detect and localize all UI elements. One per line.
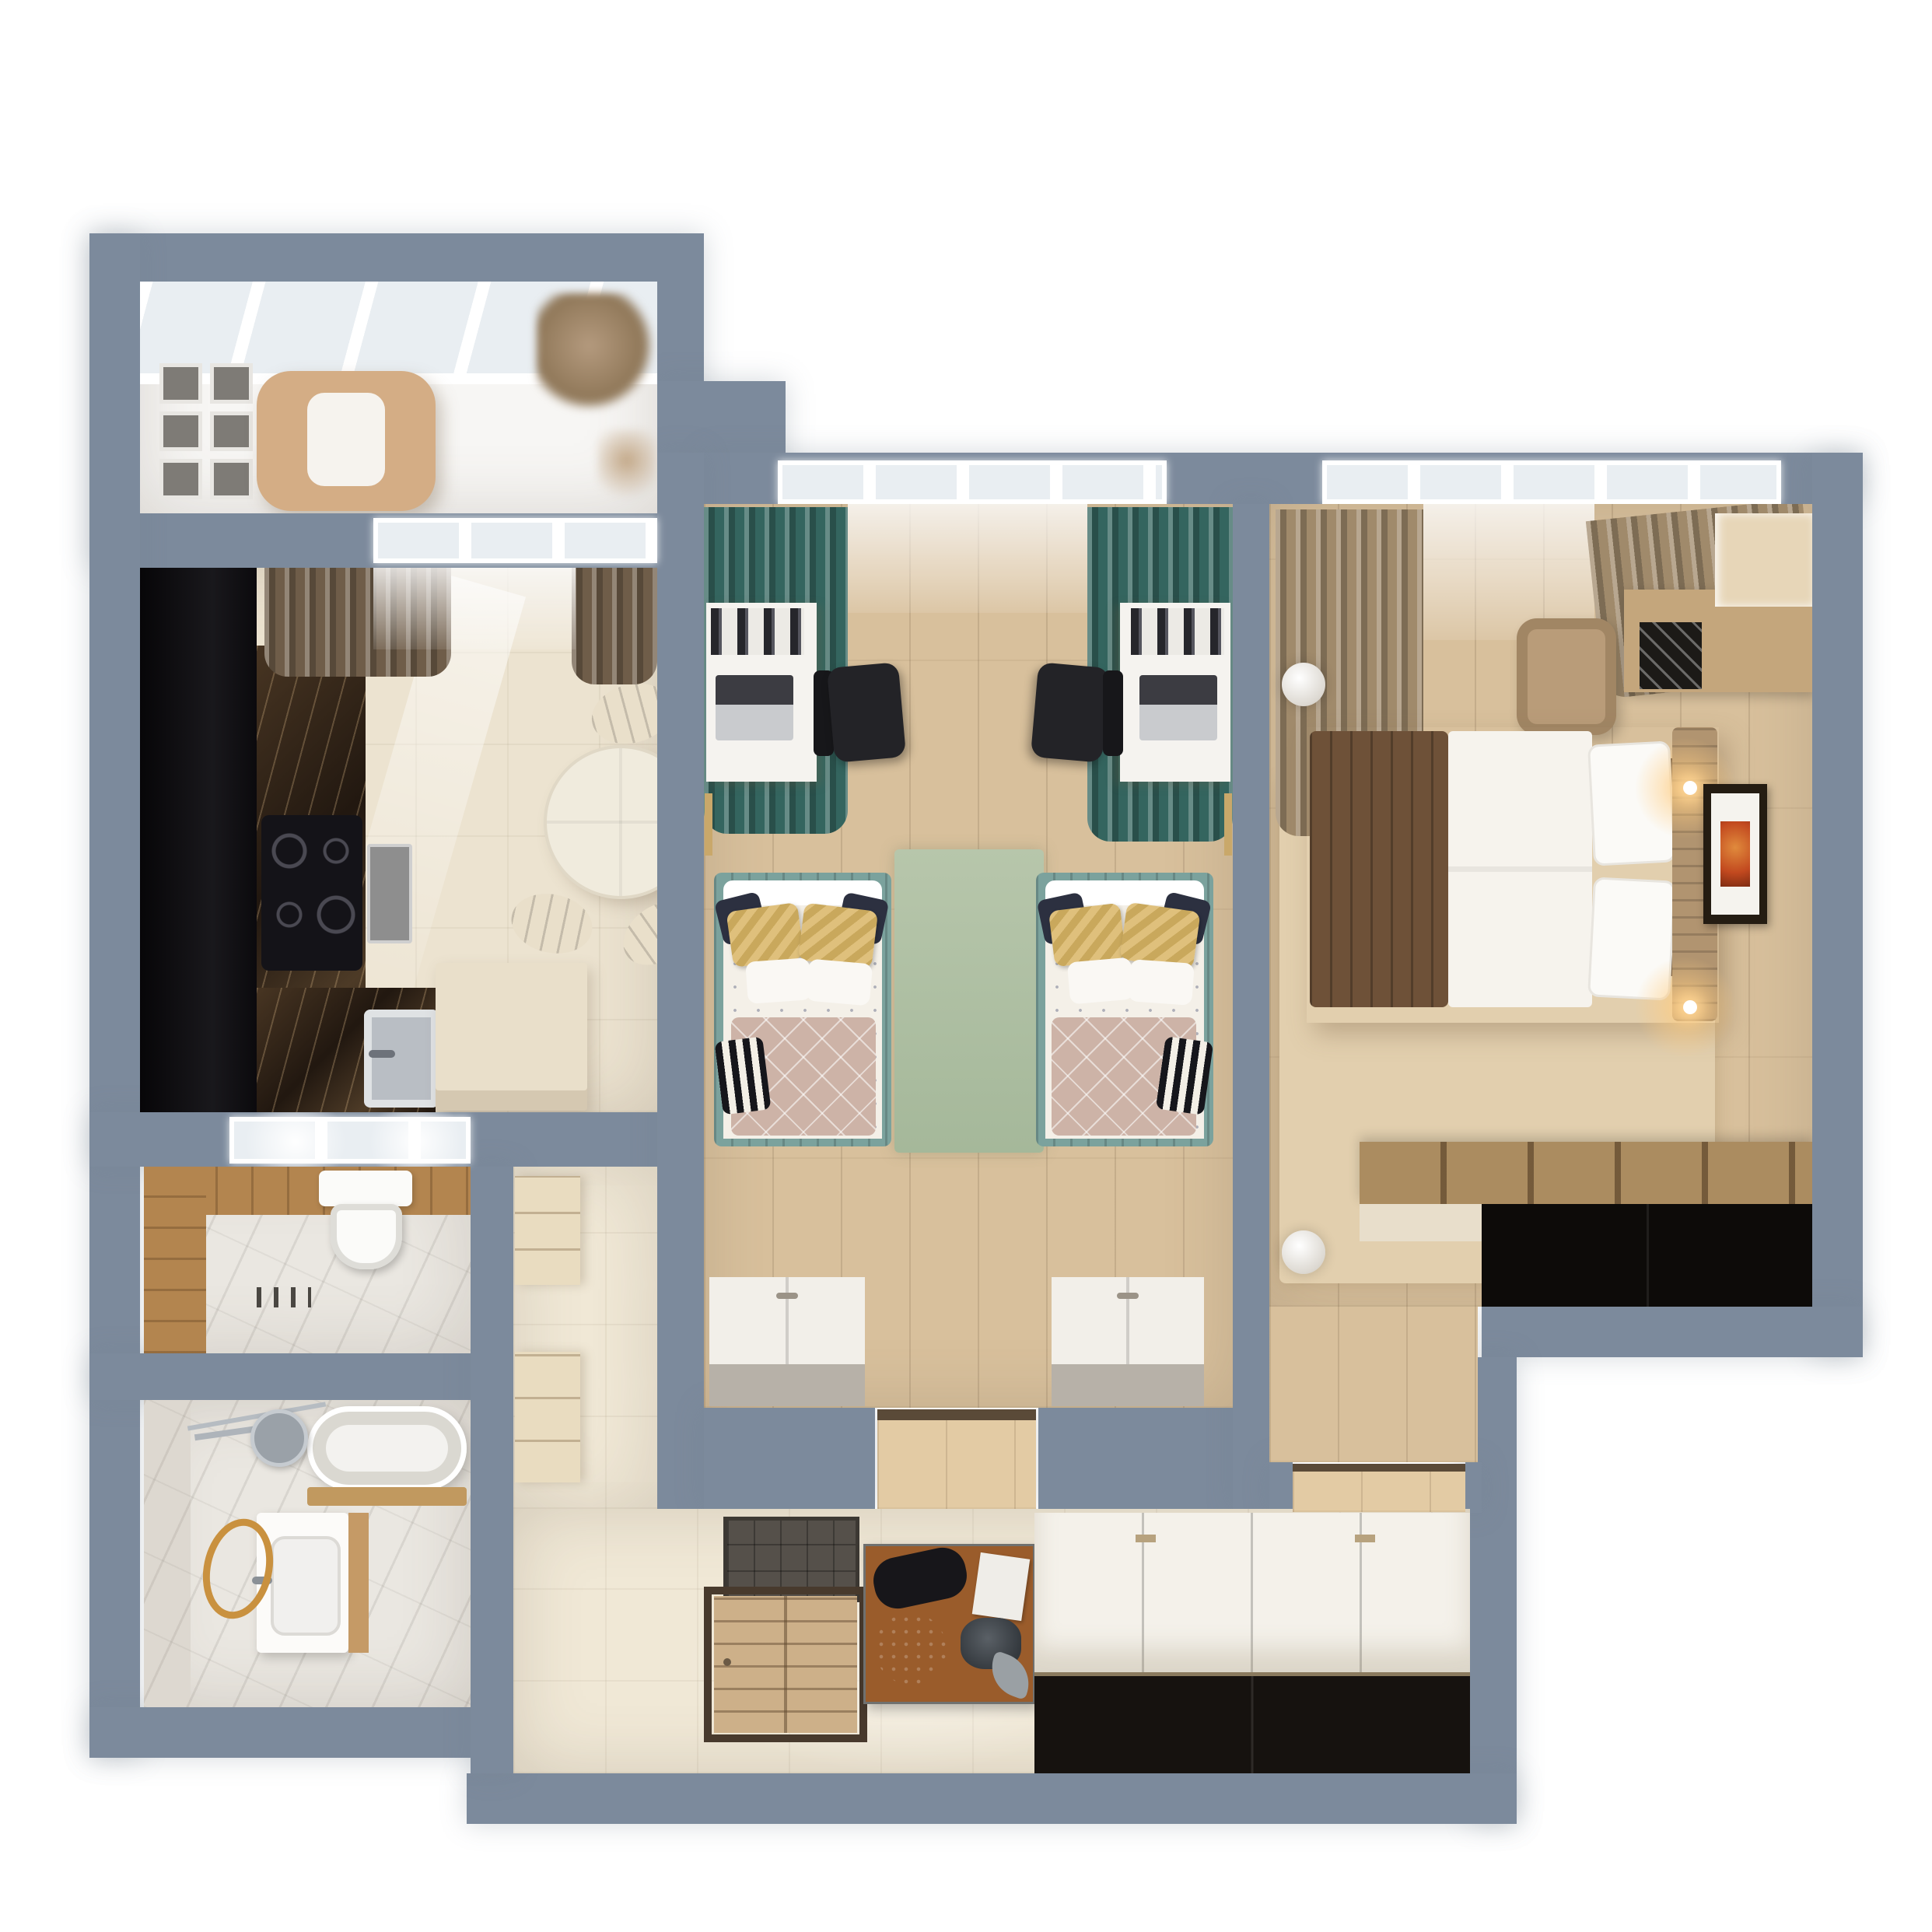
pillow-white: [806, 959, 873, 1006]
wall-left-outer: [89, 233, 140, 1758]
kitchen-window-glass: [378, 523, 653, 558]
dining-table: [547, 748, 657, 896]
sliding-wardrobe-front: [1034, 1672, 1470, 1773]
desk-shelf-right: [1131, 608, 1224, 655]
cabinet-handle: [1117, 1293, 1139, 1299]
room-master-bedroom: [1269, 504, 1812, 1307]
wall-wc-bath: [89, 1353, 513, 1400]
pillow-zigzag: [715, 1037, 772, 1115]
corkboard-right: [1224, 793, 1232, 856]
bathtub: [307, 1406, 467, 1490]
pillow-white: [1067, 957, 1134, 1005]
office-chair-right: [1031, 662, 1110, 763]
room-kitchen: [140, 568, 657, 1112]
kitchen-curtain-right: [572, 568, 657, 684]
wall-kids-master: [1233, 504, 1269, 1509]
pillow-zigzag: [1156, 1036, 1213, 1115]
pillow-yellow: [726, 902, 804, 968]
wall-sconce: [1683, 1000, 1697, 1014]
wall-master-door-right: [1465, 1462, 1482, 1513]
pendant-lamp: [1282, 663, 1325, 706]
pillow-yellow: [798, 902, 878, 968]
floor-drain: [257, 1287, 311, 1307]
wall-bath-bottom: [89, 1707, 513, 1758]
room-wc: [144, 1167, 471, 1353]
woven-basket: [875, 1613, 947, 1685]
room-corridor: [513, 1167, 657, 1509]
room-balcony: [140, 282, 657, 513]
corridor-cabinet: [515, 1176, 580, 1285]
pendant-lamp: [1282, 1230, 1325, 1274]
kids-cabinet-left: [709, 1277, 865, 1406]
papers: [972, 1552, 1031, 1621]
wall-sconce: [1683, 781, 1697, 795]
toilet-bowl: [331, 1204, 402, 1269]
corkboard-left: [705, 793, 712, 856]
wc-window: [229, 1117, 471, 1164]
bed-duvet: [1448, 731, 1592, 1007]
wardrobe-handle: [1355, 1535, 1375, 1542]
kitchen-sheer-curtain: [373, 568, 576, 649]
kitchen-island: [436, 963, 587, 1111]
shower-head: [250, 1409, 308, 1467]
kids-sheer-curtain: [848, 504, 1087, 613]
laptop-left: [716, 675, 793, 740]
pillow-yellow: [1119, 902, 1200, 970]
bathroom-wall-left: [144, 1400, 191, 1707]
picture-frame: [159, 411, 202, 452]
sliding-wardrobe-top: [1034, 1513, 1470, 1672]
framed-picture: [1703, 784, 1767, 924]
bathtub-wood-panel: [307, 1487, 467, 1506]
kids-rug: [894, 849, 1044, 1153]
faucet: [369, 1050, 395, 1058]
kids-window: [778, 460, 1167, 504]
kitchen-sink: [364, 1010, 439, 1108]
oven: [367, 844, 412, 943]
kids-door-opening: [877, 1409, 1036, 1509]
dining-chair: [506, 887, 597, 961]
kids-cabinet-right: [1052, 1277, 1204, 1406]
bed-throw-brown: [1310, 731, 1448, 1007]
dining-chair: [611, 889, 657, 978]
wall-kids-left: [657, 453, 704, 1509]
dresser-top: [1360, 1142, 1812, 1204]
office-chair-left: [827, 662, 906, 763]
wall-kids-bottom-right: [1038, 1408, 1233, 1509]
wardrobe-handle: [1136, 1535, 1156, 1542]
balcony-gallery-wall: [159, 363, 253, 499]
shoe-console: [863, 1544, 1035, 1704]
induction-cooktop: [261, 815, 362, 971]
master-armchair: [1517, 618, 1616, 735]
room-bathroom: [144, 1400, 471, 1707]
office-chair-right-back: [1103, 670, 1123, 756]
vanity-cabinet: [257, 1513, 348, 1653]
chair-cushion: [307, 393, 385, 486]
vanity-basin: [271, 1536, 341, 1636]
wall-master-door-left: [1269, 1462, 1293, 1513]
desk-shelf-left: [711, 608, 804, 655]
wood-panel-lit: [1715, 513, 1812, 607]
kids-bed-right: [1036, 873, 1213, 1146]
kitchen-window: [373, 518, 657, 563]
pillow-yellow: [1048, 903, 1126, 968]
cabinet-handle: [776, 1293, 798, 1299]
kitchen-tall-black-cabinet: [140, 568, 257, 1112]
kids-bed-left: [714, 873, 891, 1146]
wall-right-outer: [1812, 453, 1863, 1357]
master-door-opening: [1293, 1464, 1465, 1512]
corridor-cabinet: [515, 1352, 580, 1482]
vanity-wood-side: [348, 1513, 369, 1653]
master-window: [1322, 460, 1781, 504]
balcony-lounge-chair: [257, 371, 436, 511]
room-kids-bedroom: [704, 504, 1233, 1408]
dresser-front-black: [1482, 1204, 1812, 1307]
picture-frame: [159, 363, 202, 404]
master-window-glass: [1327, 465, 1776, 499]
duffel-bag: [869, 1543, 971, 1613]
floor-plan: [0, 0, 1932, 1932]
wine-rack: [1640, 622, 1702, 689]
dresser-face-beige: [1360, 1204, 1482, 1241]
pillow-white: [1128, 959, 1195, 1006]
wall-hall-bottom: [467, 1773, 1517, 1824]
master-floor-extension: [1269, 1307, 1478, 1462]
room-hallway: [513, 1509, 1470, 1773]
picture-art: [1720, 821, 1750, 887]
pillow-white: [745, 957, 812, 1004]
dining-chair: [585, 675, 657, 753]
wall-kids-bottom-left: [704, 1408, 875, 1509]
balcony-plant-small: [597, 429, 656, 507]
wall-master-bottom: [1482, 1307, 1863, 1357]
picture-frame: [210, 363, 253, 404]
entry-door-leaf: [714, 1596, 857, 1733]
kids-window-glass: [782, 465, 1162, 499]
wall-corridor-left: [471, 1167, 513, 1773]
picture-frame: [210, 459, 253, 499]
picture-frame: [159, 459, 202, 499]
toilet-cistern: [319, 1171, 412, 1206]
laptop-right: [1139, 675, 1217, 740]
door-handle: [723, 1658, 731, 1666]
balcony-plant: [537, 293, 653, 410]
picture-frame: [210, 411, 253, 452]
wc-wood-wall-left: [144, 1167, 206, 1353]
